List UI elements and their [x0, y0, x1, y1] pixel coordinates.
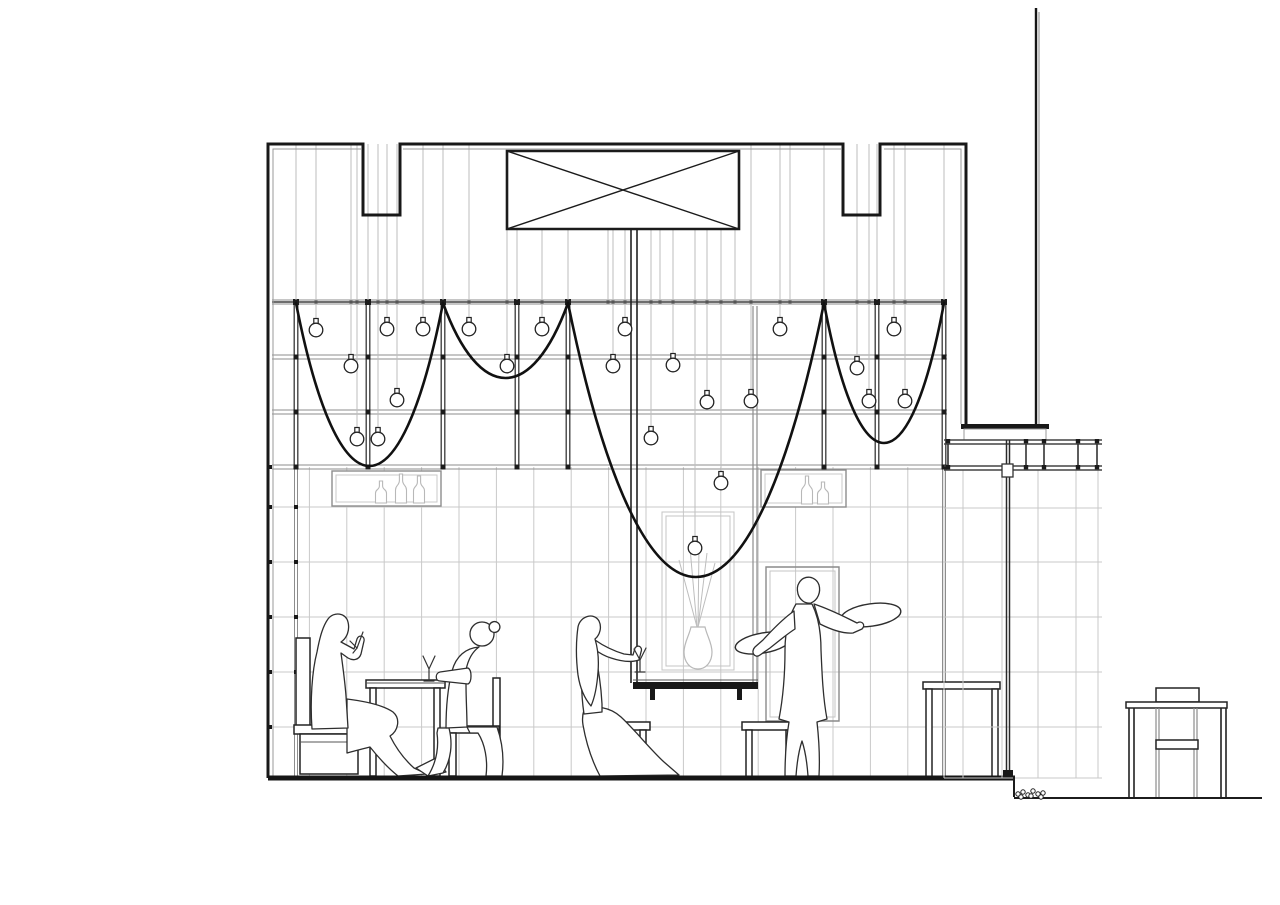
lattice-node	[942, 465, 947, 470]
railing-node	[1042, 439, 1046, 443]
light-bulb	[618, 322, 632, 336]
railing-node	[1095, 465, 1099, 469]
niche-frame	[753, 306, 757, 683]
cable-node	[750, 301, 753, 304]
light-bulb	[606, 359, 620, 373]
cable-node	[856, 301, 859, 304]
wall-node	[294, 505, 298, 509]
pole-foot	[1003, 770, 1013, 777]
counter-slab	[633, 682, 758, 689]
light-bulb	[898, 394, 912, 408]
light-bulb	[714, 476, 728, 490]
woman-on-stool	[577, 616, 680, 776]
railing-node	[1076, 465, 1080, 469]
woman-legs	[428, 728, 451, 776]
section-drawing	[0, 0, 1280, 905]
building-shell	[268, 8, 1049, 778]
cable-node	[893, 301, 896, 304]
lattice-node	[441, 355, 446, 360]
lattice-node	[875, 410, 880, 415]
architectural-section-page	[0, 0, 1280, 905]
light-bulb	[887, 322, 901, 336]
gravel-stone	[1029, 794, 1033, 798]
wine-glass	[423, 656, 435, 681]
light-bulb	[350, 432, 364, 446]
light-bulb	[688, 541, 702, 555]
kiosk	[1126, 688, 1227, 798]
light-bulb	[416, 322, 430, 336]
cable-node	[356, 301, 359, 304]
door-frame-top	[923, 682, 1000, 689]
lattice-node	[566, 355, 571, 360]
lattice-node	[566, 465, 571, 470]
gravel-stone	[1021, 790, 1025, 794]
cable-node	[350, 301, 353, 304]
gravel	[1016, 789, 1045, 799]
cable-node	[779, 301, 782, 304]
light-bulb	[773, 322, 787, 336]
railing-node	[946, 439, 950, 443]
bottle-shelves	[332, 470, 846, 507]
cable-node	[386, 301, 389, 304]
figures	[311, 577, 901, 776]
gravel-stone	[1031, 789, 1035, 793]
cable-node	[659, 301, 662, 304]
lattice-node	[294, 410, 299, 415]
light-bulb	[700, 395, 714, 409]
light-bulbs	[309, 318, 912, 555]
cable-node	[720, 301, 723, 304]
light-bulb	[390, 393, 404, 407]
cable-node	[734, 301, 737, 304]
mast-cap	[961, 424, 1049, 429]
railing-node	[1024, 439, 1028, 443]
lattice-node	[515, 410, 520, 415]
railing-node	[946, 465, 950, 469]
vase	[684, 627, 712, 669]
cable-node	[315, 301, 318, 304]
gravel-stone	[1039, 795, 1043, 799]
light-bulb	[344, 359, 358, 373]
light-bulb	[862, 394, 876, 408]
lattice-node	[515, 355, 520, 360]
lattice-node	[822, 355, 827, 360]
light-bulb	[744, 394, 758, 408]
man-legs	[347, 699, 427, 776]
mast-cap-base	[964, 429, 1046, 440]
woman-torso	[446, 647, 479, 728]
cable-node	[672, 301, 675, 304]
kiosk-door-frame	[1156, 708, 1197, 798]
light-bulb	[371, 432, 385, 446]
cable-node	[650, 301, 653, 304]
light-bulb	[850, 361, 864, 375]
woman-dress	[467, 727, 503, 776]
cable-node	[612, 301, 615, 304]
railing-node	[1024, 465, 1028, 469]
lattice-node	[942, 355, 947, 360]
kiosk-walls	[1129, 708, 1226, 798]
hanging-column	[631, 229, 637, 683]
cable-node	[789, 301, 792, 304]
light-bulb	[309, 323, 323, 337]
cable-node	[422, 301, 425, 304]
wall-node	[294, 615, 298, 619]
gravel-stone	[1019, 795, 1023, 799]
cable-node	[624, 301, 627, 304]
cable-node	[607, 301, 610, 304]
cable-node	[541, 301, 544, 304]
ground	[1014, 776, 1262, 799]
waiter-with-trays	[735, 577, 900, 776]
railing-node	[1042, 465, 1046, 469]
swag-cable	[824, 303, 944, 443]
lattice-node	[875, 465, 880, 470]
light-bulb	[462, 322, 476, 336]
cable-node	[904, 301, 907, 304]
railing-node	[1076, 439, 1080, 443]
lattice-node	[366, 410, 371, 415]
light-bulb	[644, 431, 658, 445]
swag-cables	[296, 303, 944, 577]
light-bulb	[535, 322, 549, 336]
light-bulb	[666, 358, 680, 372]
lattice-node	[515, 465, 520, 470]
kiosk-rooftop-box	[1156, 688, 1199, 702]
light-bulb	[500, 359, 514, 373]
lattice-node	[441, 465, 446, 470]
cable-node	[506, 301, 509, 304]
lattice-node	[942, 410, 947, 415]
right-trellis-structure	[944, 439, 1102, 778]
stool-woman-dress	[583, 707, 679, 776]
cable-node	[706, 301, 709, 304]
door-frame-legs	[926, 689, 998, 778]
lattice-node	[294, 355, 299, 360]
lattice-node	[294, 465, 299, 470]
railing-node	[1095, 439, 1099, 443]
kiosk-transom-band	[1156, 740, 1198, 749]
cable-node	[694, 301, 697, 304]
cable-node	[377, 301, 380, 304]
lattice-node	[875, 355, 880, 360]
flower-stems	[679, 545, 715, 627]
lattice-node	[566, 410, 571, 415]
kiosk-roof	[1126, 702, 1227, 708]
lattice-node	[822, 410, 827, 415]
cable-node	[396, 301, 399, 304]
light-bulb	[380, 322, 394, 336]
counter-feet	[650, 689, 742, 700]
waiter-head	[797, 577, 819, 603]
cable-node	[468, 301, 471, 304]
bench-backrest	[296, 638, 310, 726]
lattice-node	[441, 410, 446, 415]
central-column-and-niche	[631, 229, 757, 683]
lattice-node	[366, 355, 371, 360]
wall-node	[294, 560, 298, 564]
cable-node	[868, 301, 871, 304]
woman-arm	[436, 668, 471, 684]
pole-connector	[1002, 464, 1013, 477]
woman-hair-bun	[489, 622, 500, 633]
lattice-node	[822, 465, 827, 470]
